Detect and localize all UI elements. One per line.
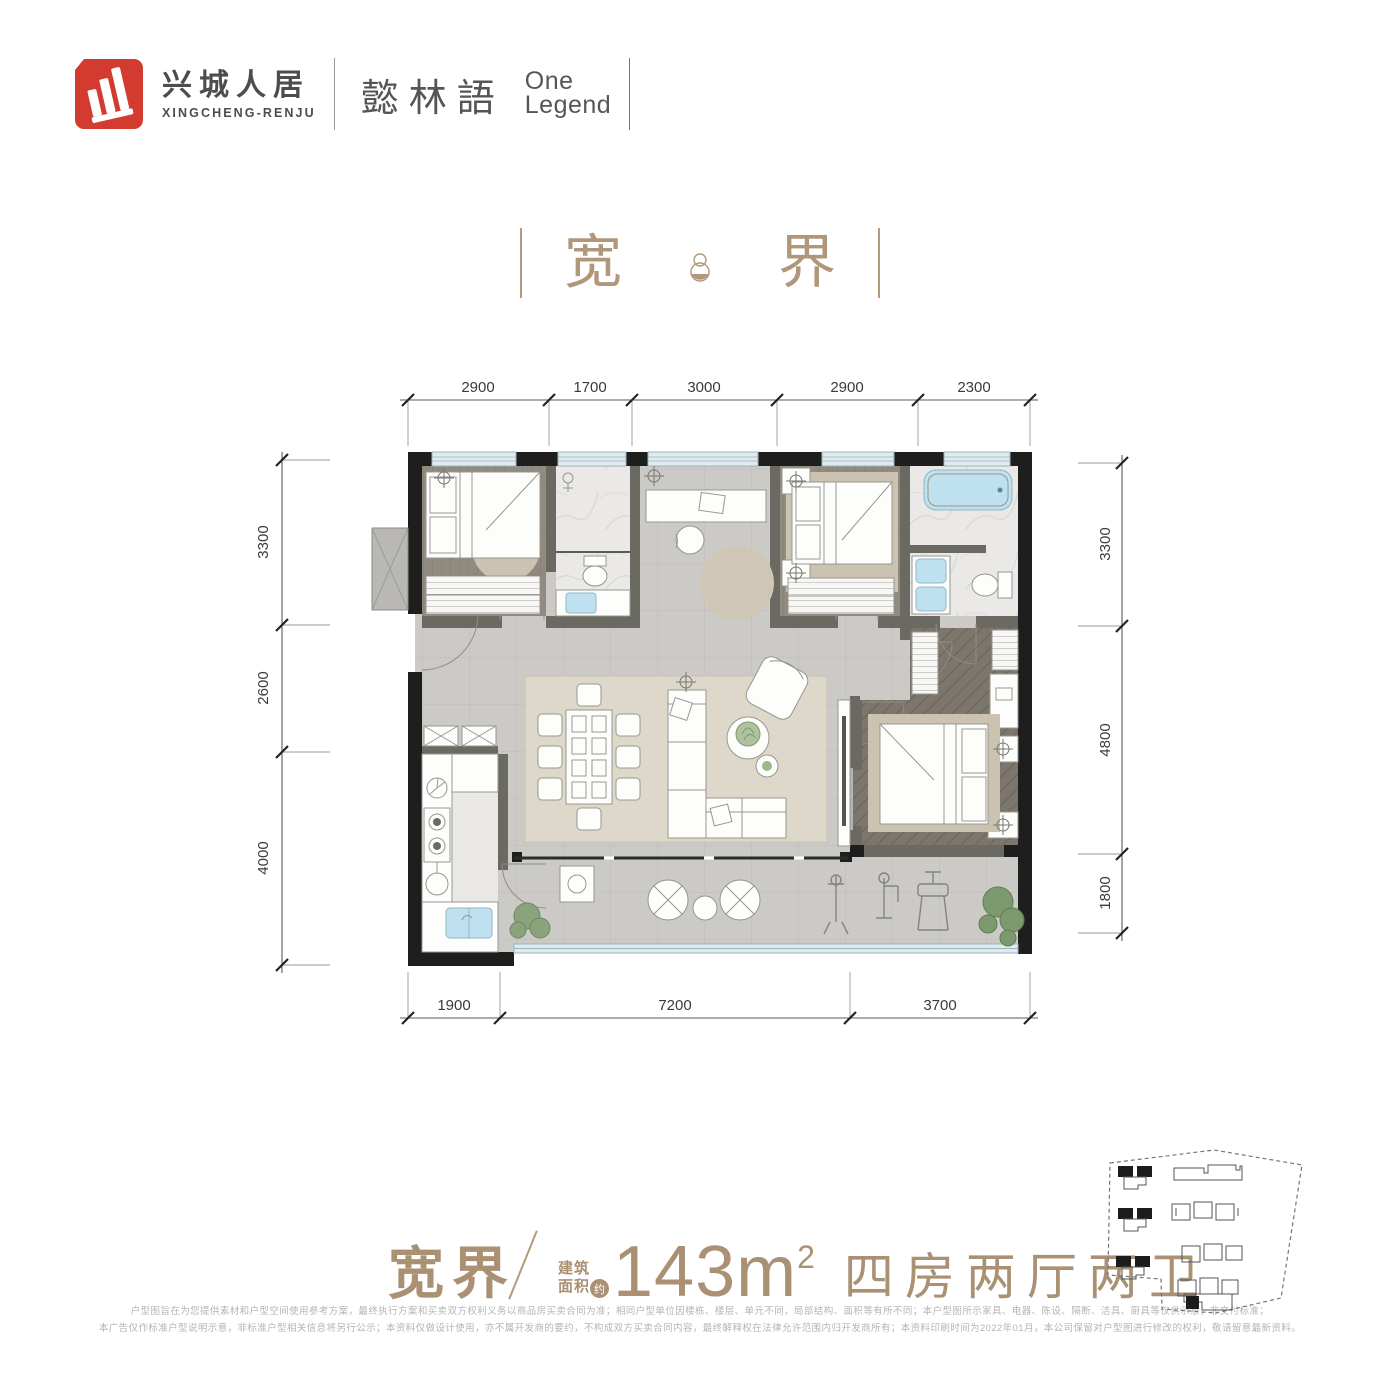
hero-right-bar (878, 228, 880, 298)
hero-char-right: 界 (778, 228, 836, 298)
svg-text:3300: 3300 (255, 525, 272, 558)
brand-name-en: XINGCHENG-RENJU (162, 106, 316, 120)
entry-porch (372, 528, 408, 610)
svg-text:2900: 2900 (830, 379, 863, 396)
plan-name: 宽界 (388, 1246, 516, 1302)
bedroom-2 (426, 472, 540, 614)
svg-text:3700: 3700 (923, 997, 956, 1014)
floor-plan: 2900 1700 3000 2900 2300 3300 2600 4000 … (250, 350, 1160, 1060)
header-end-bar (629, 58, 630, 130)
dimension-bottom: 1900 7200 3700 (400, 972, 1038, 1024)
project-name-cn: 懿林語 (361, 67, 505, 122)
bedroom-3 (782, 468, 898, 614)
xingcheng-logo-icon (74, 56, 144, 132)
site-buildings-outline (1172, 1165, 1242, 1310)
site-building-entry (1186, 1296, 1199, 1309)
dimension-left: 3300 2600 4000 (255, 452, 330, 973)
area-approx-badge: 约 (590, 1279, 609, 1298)
svg-text:2600: 2600 (255, 671, 272, 704)
hero-left-bar (520, 228, 522, 298)
footer-info-bar: 宽界 建筑 面积 约 143m2 四房两厅两卫 (388, 1228, 1210, 1302)
header-divider (334, 58, 335, 130)
svg-text:1700: 1700 (573, 379, 606, 396)
svg-text:3300: 3300 (1097, 527, 1114, 560)
dimension-right: 3300 4800 1800 (1078, 455, 1128, 941)
svg-text:1900: 1900 (437, 997, 470, 1014)
area-label: 建筑 面积 (558, 1260, 590, 1296)
brand-name-cn: 兴城人居 (162, 69, 316, 102)
svg-text:1800: 1800 (1097, 876, 1114, 909)
area-exponent: 2 (797, 1239, 816, 1275)
svg-text:4000: 4000 (255, 841, 272, 874)
header-brand-bar: 兴城人居 XINGCHENG-RENJU 懿林語 One Legend (74, 56, 630, 132)
svg-text:3000: 3000 (687, 379, 720, 396)
hero-ornament-icon (688, 251, 712, 285)
svg-text:2900: 2900 (461, 379, 494, 396)
hero-char-left: 宽 (564, 228, 622, 298)
area-value: 143m2 (613, 1243, 816, 1302)
site-plan-key-map (1088, 1142, 1332, 1322)
hero-title: 宽 界 (0, 228, 1400, 298)
svg-text:2300: 2300 (957, 379, 990, 396)
site-buildings-filled (1116, 1166, 1152, 1267)
project-name-en: One Legend (525, 70, 611, 118)
dimension-top: 2900 1700 3000 2900 2300 (400, 379, 1038, 446)
floorplan-poster: { "brand": { "name_cn": "兴城人居", "name_en… (0, 0, 1400, 1400)
svg-text:7200: 7200 (658, 997, 691, 1014)
svg-text:4800: 4800 (1097, 723, 1114, 756)
disclaimer-line-2: 本广告仅作标准户型说明示意，非标准户型相关信息将另行公示；本资料仅做设计使用，亦… (0, 1320, 1400, 1334)
